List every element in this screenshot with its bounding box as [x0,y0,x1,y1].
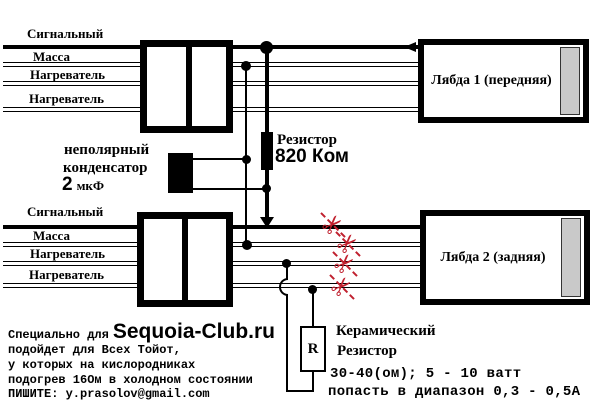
footer-line2: подойдет для Всех Тойот, [8,343,288,358]
lambda1-connector-strip [560,47,580,115]
capacitor-value: 2 мкФ [62,174,104,196]
signal-tap-arrow-icon [260,217,274,228]
wire-label-signal-bottom: Сигнальный [27,204,103,220]
tap-signal-vertical-lower [265,170,269,219]
ceramic-resistor-label-line1: Керамический [336,323,436,340]
resistor-value: 820 Ком [275,146,349,168]
connector-divider [182,219,188,300]
junction-signal-top [260,41,273,54]
junction-ground-bottom [242,240,252,250]
cut-mark-heater2: ✂ [322,267,362,307]
r-lead-top [312,290,314,326]
footer-contact-email: ПИШИТЕ: y.prasolov@gmail.com [8,387,288,402]
ceramic-resistor-label-line2: Резистор [337,343,397,360]
capacitor-lead-bottom [192,188,267,190]
capacitor-body [168,153,193,193]
wire-label-heater2-top: Нагреватель [29,91,104,107]
r-bottom-link [286,390,314,392]
junction-heater1-bottom [282,259,291,268]
tap-signal-vertical-upper [265,48,269,133]
junction-ground-top [241,61,251,71]
capacitor-label-line1: неполярный [64,142,149,159]
footer-prefix: Специально для [8,328,109,343]
connector-block-bottom [137,212,233,307]
wire-hop-icon [279,278,288,296]
junction-cap-ground [242,155,251,164]
ceramic-resistor-spec: 30-40(ом); 5 - 10 ватт [330,366,521,382]
wire-label-heater1-bottom: Нагреватель [30,246,105,262]
junction-cap-signal [262,184,271,193]
lambda2-connector-strip [561,218,581,297]
resistor-820k-body [261,132,273,170]
ceramic-resistor-target-range: попасть в диапазон 0,3 - 0,5А [328,384,580,400]
scissors-icon: ✂ [314,259,371,316]
connector-divider [186,47,192,126]
lambda2-box: Лябда 2 (задняя) [420,210,590,305]
capacitor-value-unit: мкФ [77,178,105,193]
wire-label-signal-top: Сигнальный [27,26,103,42]
ceramic-resistor-body: R [300,326,326,372]
lambda2-label: Лябда 2 (задняя) [428,216,558,299]
lambda1-box: Лябда 1 (передняя) [418,39,589,123]
r-lead-bottom [312,372,314,392]
wire-label-heater2-bottom: Нагреватель [29,267,104,283]
footer-line3: у которых на кислородниках [8,358,288,373]
lambda1-label: Лябда 1 (передняя) [426,45,557,117]
capacitor-value-number: 2 [62,174,73,195]
capacitor-lead-top [192,158,246,160]
footer-line4: подогрев 16Ом в холодном состоянии [8,373,288,388]
footer-line1: Специально для Sequoia-Club.ru [8,320,288,343]
wiring-diagram: Сигнальный Масса Нагреватель Нагреватель… [0,0,600,405]
footer-note: Специально для Sequoia-Club.ru подойдет … [8,320,288,402]
connector-block-top [140,40,233,133]
site-name: Sequoia-Club.ru [113,320,275,344]
signal-wire-arrow-icon [404,42,416,52]
